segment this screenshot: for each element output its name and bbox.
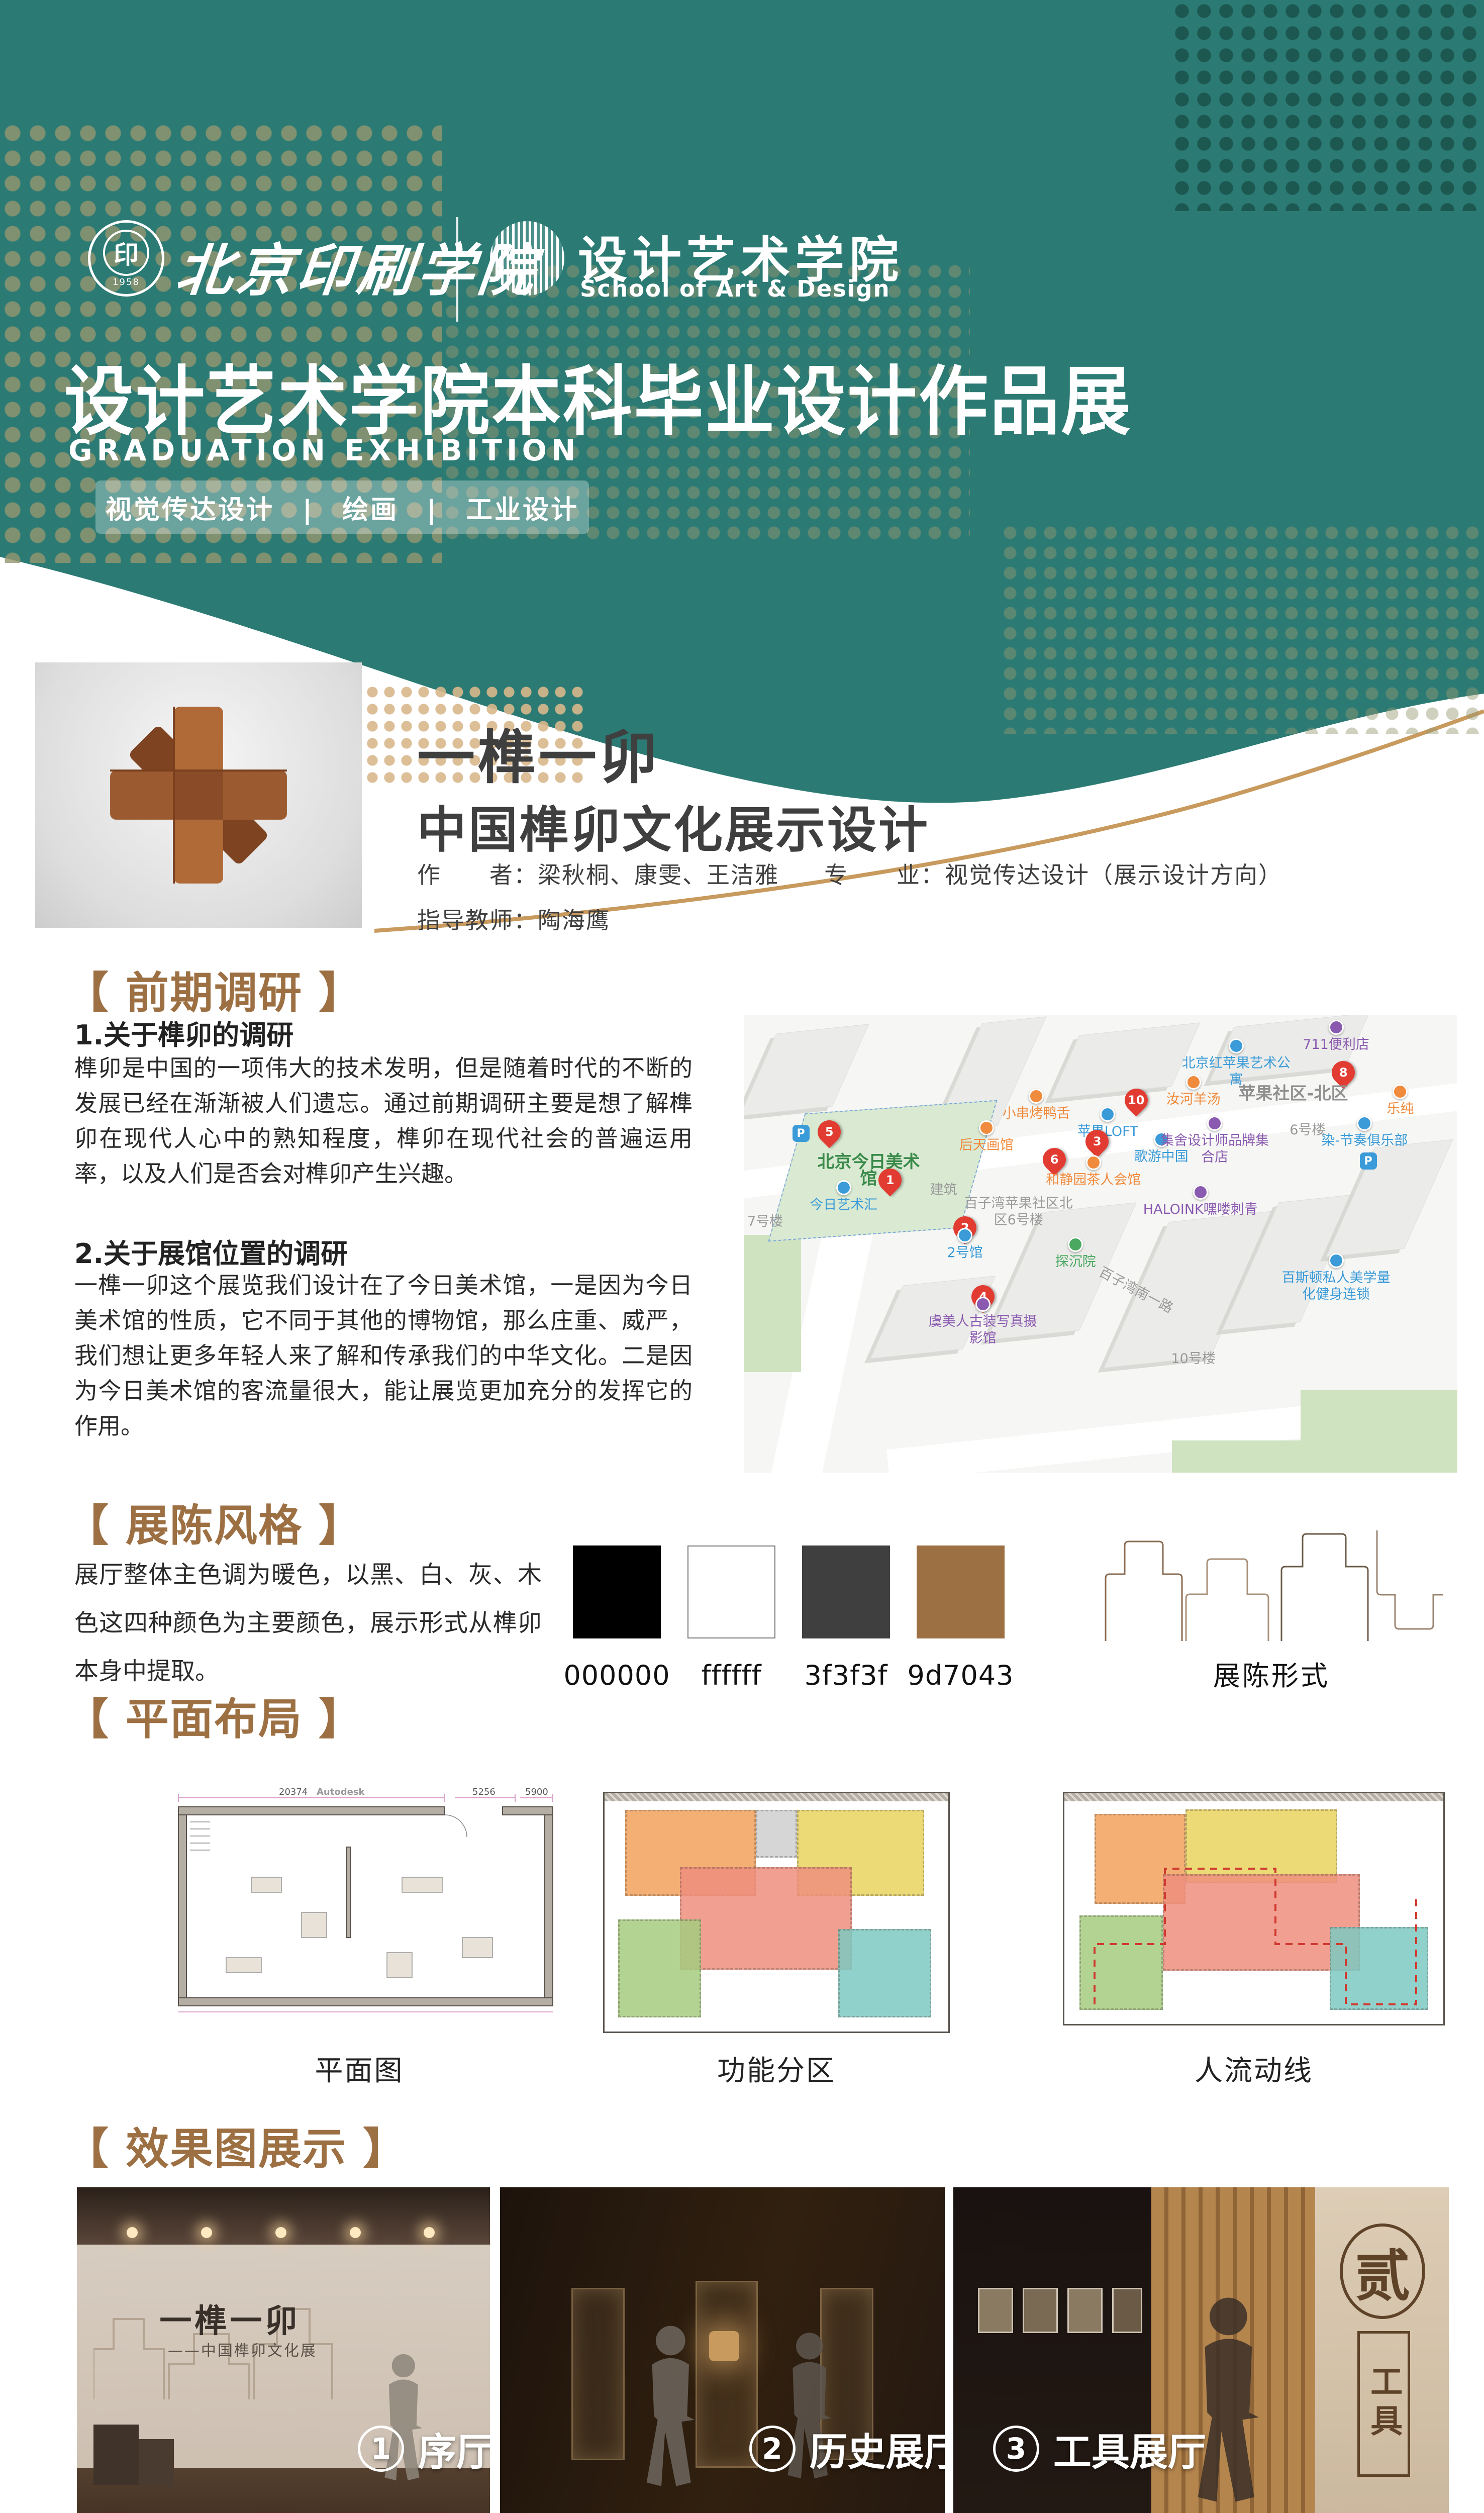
map-poi: 5 bbox=[771, 1120, 887, 1143]
map-poi: 乐纯 乐纯 bbox=[1342, 1084, 1457, 1117]
map-poi: 今日艺术汇 今日艺术汇 bbox=[786, 1180, 902, 1213]
map-poi: 8 bbox=[1285, 1061, 1401, 1084]
project-advisor: 指导教师：陶海鹰 bbox=[417, 902, 610, 935]
map-poi-dot-icon bbox=[1086, 1155, 1101, 1170]
plan2-zones bbox=[605, 1793, 948, 2032]
wall-title: 一榫一卯 bbox=[159, 2295, 300, 2342]
map-poi-dot-icon bbox=[1393, 1084, 1408, 1099]
map-poi: 711便利店 711便利店 bbox=[1278, 1020, 1394, 1053]
swatch-chip bbox=[573, 1545, 661, 1638]
wall-subtitle: ——中国榫卯文化展 bbox=[168, 2338, 317, 2360]
floor-plan-3 bbox=[1063, 1792, 1445, 2025]
function-zone bbox=[618, 1919, 701, 2017]
map-poi-label: 虞美人古装写真摄影馆 bbox=[925, 1313, 1041, 1346]
map-poi-label: 和静园茶人会馆 bbox=[1046, 1172, 1141, 1188]
research-sub1: 1.关于榫卯的调研 bbox=[74, 1013, 293, 1052]
map-poi: 染-节奏俱乐部 染-节奏俱乐部 bbox=[1307, 1116, 1422, 1149]
swatch-chip bbox=[917, 1545, 1005, 1638]
hall-number-badge: 3 bbox=[993, 2426, 1039, 2472]
hall-number-badge: 1 bbox=[358, 2426, 404, 2472]
map-poi: 7号楼 7号楼 bbox=[744, 1212, 823, 1230]
puzzle-photo bbox=[35, 662, 362, 928]
pedestal bbox=[139, 2439, 174, 2487]
map-pin-icon: 5 bbox=[813, 1116, 846, 1148]
seal-year: 1958 bbox=[113, 277, 140, 287]
display-form-outlines bbox=[1096, 1523, 1447, 1644]
function-zone bbox=[838, 1929, 931, 2017]
swatch-chip bbox=[802, 1545, 890, 1638]
map-poi-dot-icon bbox=[1186, 1075, 1201, 1090]
color-swatch: 9d7043 bbox=[917, 1545, 1005, 1691]
map-poi-label: 2号馆 bbox=[947, 1244, 983, 1261]
map-poi-dot-icon bbox=[957, 1228, 972, 1243]
style-para: 展厅整体主色调为暖色，以黑、白、灰、木色这四种颜色为主要颜色，展示形式从榫卯本身… bbox=[74, 1551, 542, 1695]
research-para2: 一榫一卯这个展览我们设计在了今日美术馆，一是因为今日美术馆的性质，它不同于其他的… bbox=[74, 1268, 692, 1443]
circulation-route bbox=[1064, 1793, 1446, 2027]
color-swatches: 000000 ffffff 3f3f3f 9d7043 bbox=[573, 1545, 1005, 1691]
photo-hall-1: 一榫一卯 ——中国榫卯文化展 1 序厅 bbox=[77, 2187, 490, 2513]
hall-caption-3: 3 工具展厅 bbox=[993, 2421, 1206, 2476]
map-poi: P P bbox=[1311, 1152, 1426, 1170]
map-poi-dot-icon bbox=[1329, 1020, 1344, 1035]
section-heading-layout: 【 平面布局 】 bbox=[65, 1684, 363, 1747]
project-major: 专 业：视觉传达设计（展示设计方向） bbox=[824, 857, 1282, 890]
hall-seal-label: 工具 bbox=[1357, 2331, 1410, 2477]
framed-picture bbox=[1112, 2288, 1142, 2333]
school-name-en: School of Art & Design bbox=[580, 275, 891, 302]
swatch-hex-label: 3f3f3f bbox=[804, 1660, 887, 1691]
major-tags: 视觉传达设计 | 绘画 | 工业设计 bbox=[95, 480, 589, 534]
swatch-hex-label: ffffff bbox=[701, 1660, 761, 1691]
svg-text:Autodesk: Autodesk bbox=[317, 1787, 365, 1797]
map-poi: 苹果社区-北区 苹果社区-北区 bbox=[1235, 1084, 1351, 1102]
color-swatch: ffffff bbox=[687, 1545, 775, 1691]
map-poi-dot-icon bbox=[979, 1120, 994, 1135]
swatch-chip bbox=[687, 1545, 775, 1638]
svg-text:5256: 5256 bbox=[472, 1787, 496, 1797]
research-para1: 榫卯是中国的一项伟大的技术发明，但是随着时代的不断的发展已经在渐渐被人们遗忘。通… bbox=[74, 1050, 692, 1191]
map-poi-dot-icon bbox=[975, 1297, 991, 1312]
school-logo bbox=[490, 221, 564, 296]
photo-hall-3: 贰 工具 3 工具展厅 bbox=[953, 2187, 1449, 2513]
logo-divider bbox=[456, 217, 458, 322]
map-poi: 虞美人古装写真摄影馆 虞美人古装写真摄影馆 bbox=[925, 1297, 1041, 1346]
map-poi-label: 百斯顿私人美学量化健身连锁 bbox=[1278, 1270, 1394, 1303]
map-poi-label: HALOINK嘿喽刺青 bbox=[1143, 1201, 1258, 1218]
project-authors: 作 者：梁秋桐、康雯、王洁雅 bbox=[417, 857, 779, 890]
map-poi-dot-icon bbox=[1207, 1116, 1222, 1131]
section-heading-style: 【 展陈风格 】 bbox=[65, 1490, 363, 1553]
hall-seal-number: 贰 bbox=[1340, 2224, 1425, 2319]
hall-name: 序厅 bbox=[418, 2421, 490, 2476]
framed-picture bbox=[978, 2288, 1013, 2333]
pedestal bbox=[93, 2425, 139, 2485]
map-parking-icon: P bbox=[1360, 1152, 1377, 1170]
map-poi-label: 7号楼 bbox=[747, 1213, 783, 1230]
location-map: 711便利店 711便利店 北京红苹果艺术公寓 北京红苹果艺术公寓 8 乐纯 bbox=[744, 1015, 1457, 1473]
halftone-dots-right bbox=[1000, 523, 1484, 734]
map-poi-dot-icon bbox=[1329, 1253, 1344, 1268]
map-poi-dot-icon bbox=[1357, 1116, 1372, 1131]
svg-text:20374: 20374 bbox=[279, 1787, 308, 1797]
map-poi-dot-icon bbox=[1029, 1089, 1044, 1104]
framed-picture bbox=[1067, 2288, 1103, 2333]
page-subtitle: GRADUATION EXHIBITION bbox=[68, 433, 580, 467]
svg-text:5900: 5900 bbox=[525, 1787, 548, 1797]
map-poi: 和静园茶人会馆 和静园茶人会馆 bbox=[1036, 1155, 1151, 1188]
map-poi-layer: 711便利店 711便利店 北京红苹果艺术公寓 北京红苹果艺术公寓 8 乐纯 bbox=[744, 1015, 1457, 1473]
photo-hall-2: 2 历史展厅 bbox=[500, 2187, 945, 2513]
section-heading-renderings: 【 效果图展示 】 bbox=[65, 2113, 407, 2176]
function-zone bbox=[756, 1810, 797, 1858]
map-poi-dot-icon bbox=[1193, 1185, 1208, 1200]
map-poi-label: 染-节奏俱乐部 bbox=[1322, 1132, 1408, 1149]
plan-caption-1: 平面图 bbox=[151, 2048, 568, 2089]
map-poi-dot-icon bbox=[1229, 1038, 1244, 1053]
plan-caption-2: 功能分区 bbox=[603, 2048, 950, 2089]
function-zone bbox=[680, 1867, 852, 1970]
research-sub2: 2.关于展馆位置的调研 bbox=[74, 1231, 348, 1271]
project-title: 一榫一卯 bbox=[417, 711, 660, 795]
map-poi-dot-icon bbox=[836, 1180, 851, 1195]
map-poi-label: 建筑 bbox=[930, 1182, 957, 1198]
hall-caption-1: 1 序厅 bbox=[358, 2421, 490, 2476]
floor-plan-2 bbox=[603, 1792, 950, 2033]
visitor-silhouette bbox=[634, 2324, 708, 2490]
university-name: 北京印刷学院 bbox=[172, 225, 543, 307]
artifact-glow bbox=[709, 2331, 739, 2361]
map-poi-label: 苹果社区-北区 bbox=[1238, 1086, 1348, 1102]
floor-plan-1: 20374 Autodesk 5256 5900 bbox=[151, 1787, 568, 2023]
color-swatch: 000000 bbox=[573, 1545, 661, 1691]
plan-caption-3: 人流动线 bbox=[1063, 2048, 1445, 2089]
seal-glyph: 印 bbox=[103, 230, 149, 276]
swatch-hex-label: 000000 bbox=[563, 1660, 670, 1691]
map-poi-label: 百子湾南一路 bbox=[1096, 1264, 1176, 1317]
wooden-burr-puzzle-icon bbox=[90, 687, 307, 903]
display-form-label: 展陈形式 bbox=[1096, 1654, 1447, 1693]
map-poi: 探沉院 探沉院 bbox=[1018, 1237, 1133, 1270]
section-heading-research: 【 前期调研 】 bbox=[65, 957, 363, 1020]
framed-picture bbox=[1023, 2288, 1058, 2333]
hall-name: 工具展厅 bbox=[1053, 2421, 1206, 2476]
map-poi-label: 乐纯 bbox=[1387, 1101, 1414, 1117]
poster: 印 1958 北京印刷学院 设计艺术学院 School of Art & Des… bbox=[0, 0, 1484, 2513]
color-swatch: 3f3f3f bbox=[802, 1545, 890, 1691]
project-subtitle: 中国榫卯文化展示设计 bbox=[417, 790, 930, 861]
map-poi-label: 今日艺术汇 bbox=[810, 1197, 877, 1213]
map-poi: HALOINK嘿喽刺青 HALOINK嘿喽刺青 bbox=[1143, 1185, 1258, 1218]
map-poi: 10号楼 10号楼 bbox=[1136, 1349, 1251, 1367]
map-poi-dot-icon bbox=[1068, 1237, 1083, 1252]
map-poi-dot-icon bbox=[1100, 1107, 1115, 1122]
map-poi: 百子湾南一路 百子湾南一路 bbox=[1081, 1254, 1192, 1325]
hall-number-badge: 2 bbox=[749, 2426, 796, 2472]
hall-caption-2: 2 历史展厅 bbox=[749, 2421, 945, 2476]
swatch-hex-label: 9d7043 bbox=[907, 1660, 1014, 1691]
hall-name: 历史展厅 bbox=[810, 2421, 945, 2476]
map-poi-label: 711便利店 bbox=[1303, 1036, 1369, 1053]
university-seal-logo: 印 1958 bbox=[88, 220, 164, 297]
map-poi: 百斯顿私人美学量化健身连锁 百斯顿私人美学量化健身连锁 bbox=[1278, 1253, 1394, 1303]
halftone-dots-topright bbox=[1171, 0, 1484, 211]
map-poi-label: 10号楼 bbox=[1171, 1350, 1215, 1367]
map-poi: 2号馆 2号馆 bbox=[907, 1228, 1023, 1261]
